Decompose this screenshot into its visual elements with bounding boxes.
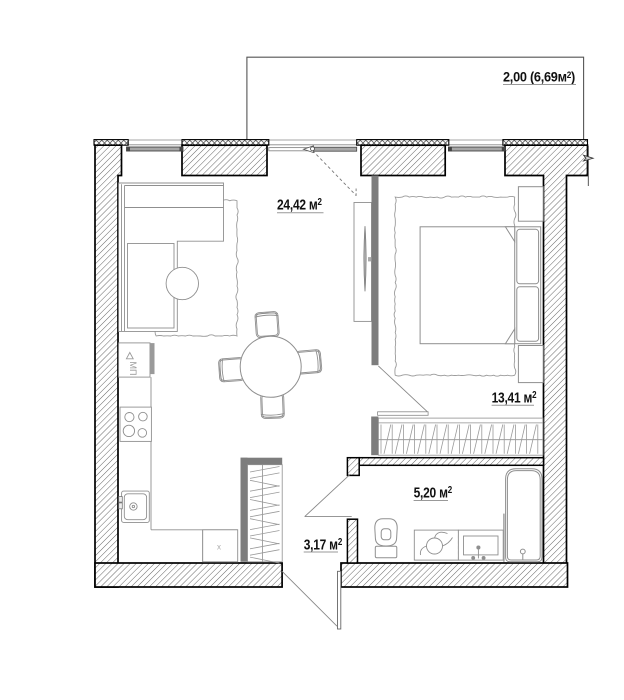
svg-text:2,00 (6,69м2): 2,00 (6,69м2) [503,69,575,85]
svg-text:13,41 м2: 13,41 м2 [492,389,537,406]
svg-text:3,17 м2: 3,17 м2 [304,536,343,553]
svg-text:5,20 м2: 5,20 м2 [414,484,453,501]
svg-text:x: x [217,543,221,552]
svg-text:24,42 м2: 24,42 м2 [277,196,322,213]
svg-text:МП: МП [128,362,138,376]
